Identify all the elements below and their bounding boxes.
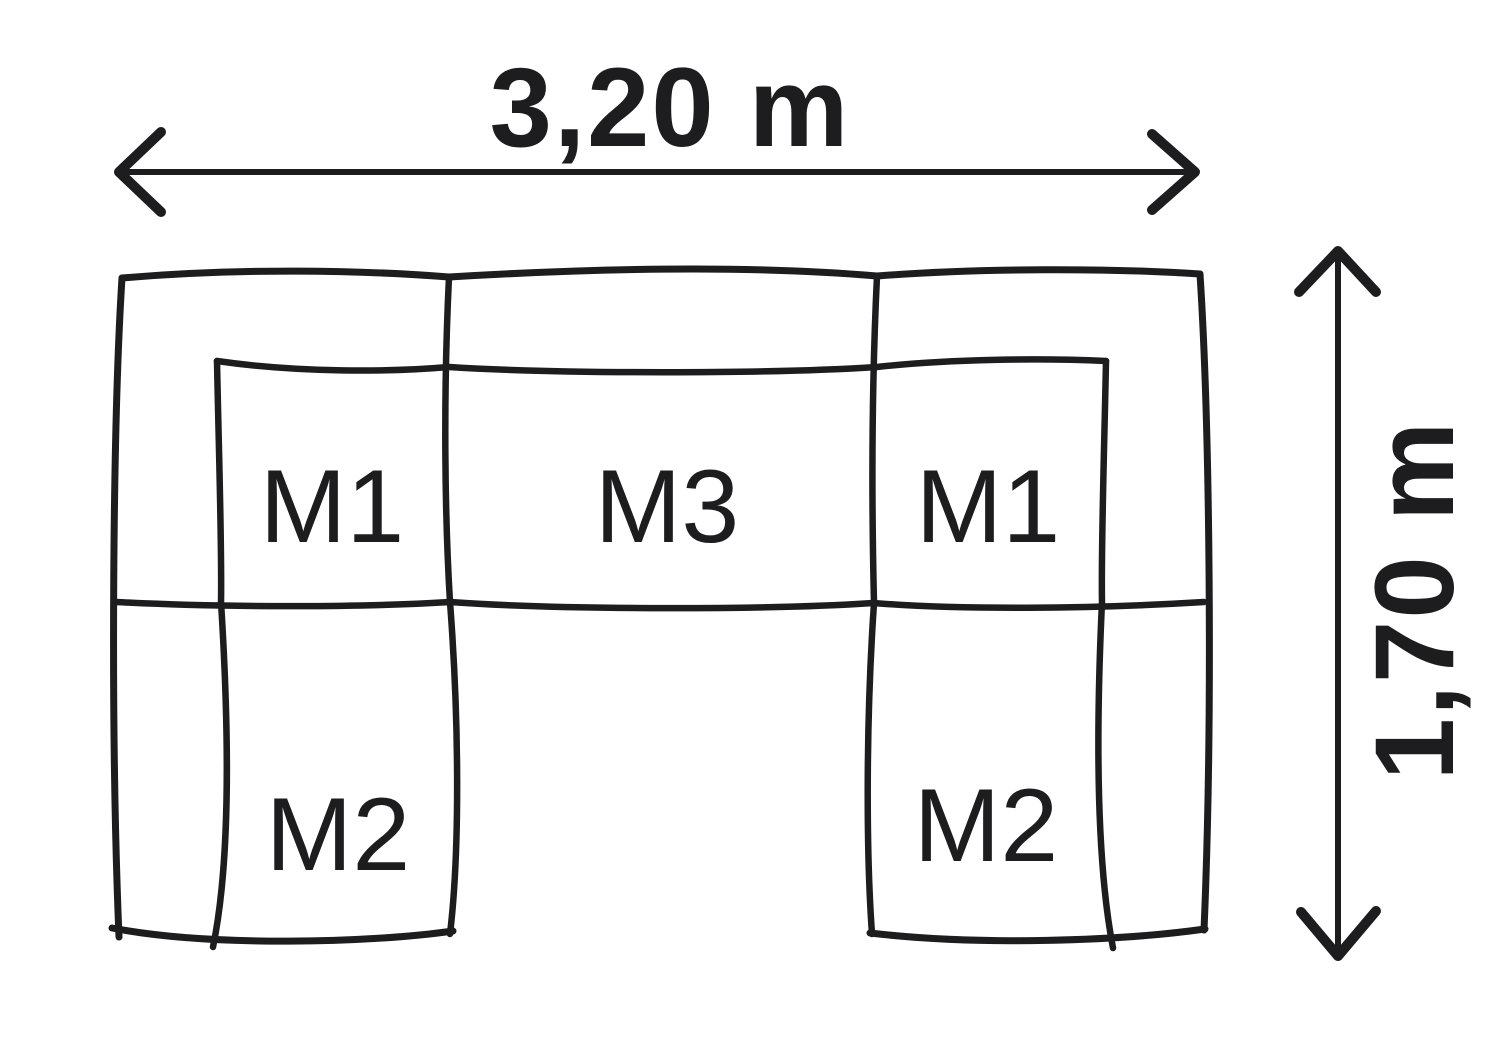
width-dimension-label: 3,20 m <box>490 45 851 170</box>
module-label-m3-center: M3 <box>595 449 739 565</box>
sofa-dimension-diagram: 3,20 m 1,70 m M1 M3 M1 <box>0 0 1490 1059</box>
sofa-left-outer-edge <box>114 278 122 937</box>
diagram-canvas: 3,20 m 1,70 m M1 M3 M1 <box>0 0 1490 1059</box>
module-labels: M1 M3 M1 M2 M2 <box>260 449 1060 893</box>
module-label-m1-right: M1 <box>916 449 1060 565</box>
seam-backrest-horizontal <box>217 359 1106 372</box>
seam-right-armrest-vertical <box>1098 361 1113 948</box>
module-label-m1-left: M1 <box>260 449 404 565</box>
seam-middle-horizontal <box>116 602 1204 608</box>
sofa-left-leg-bottom-edge <box>112 928 453 941</box>
module-label-m2-left: M2 <box>266 777 410 893</box>
sofa-right-leg-bottom-edge <box>870 929 1205 941</box>
sofa-back-top-edge <box>122 269 1200 278</box>
seam-left-armrest-vertical <box>213 361 227 947</box>
module-label-m2-right: M2 <box>914 768 1058 884</box>
depth-dimension-label: 1,70 m <box>1352 420 1477 781</box>
